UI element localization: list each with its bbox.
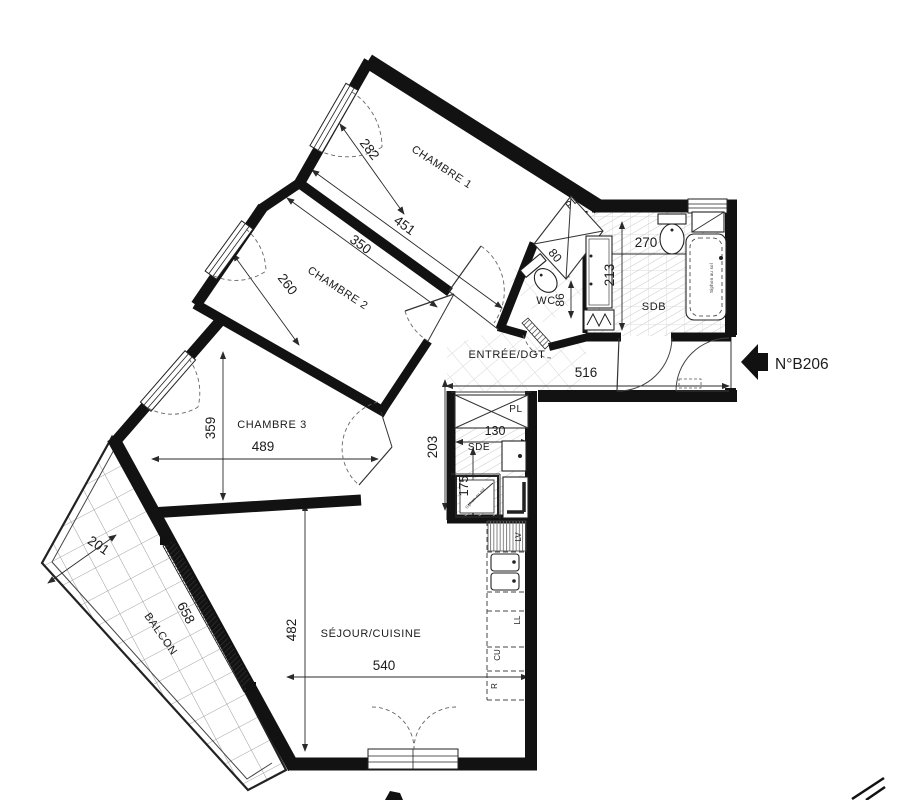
dim-chambre3-depth: 359 xyxy=(203,417,218,440)
dim-sde-width: 130 xyxy=(485,424,506,438)
room-label-entree: ENTRÉE/DGT xyxy=(469,348,546,361)
dim-sdb-depth: 213 xyxy=(602,264,617,287)
room-label-chambre2: CHAMBRE 2 xyxy=(305,265,370,313)
chambre2-window xyxy=(205,221,253,279)
sdb-door xyxy=(617,338,672,391)
unit-tag xyxy=(741,344,768,380)
note-floor-drain-bath: Siphon au sol xyxy=(709,263,714,293)
wall-ch2-ch3 xyxy=(195,304,386,413)
dim-wc-depth: 86 xyxy=(553,293,567,307)
balcony xyxy=(42,437,286,790)
closet-label-pl-hall: PL xyxy=(509,404,522,415)
chambre1-window xyxy=(310,83,358,152)
unit-label: N°B206 xyxy=(775,356,829,373)
dim-sejour-depth: 482 xyxy=(284,619,299,642)
bathtub xyxy=(686,234,726,320)
entrance-door xyxy=(676,338,729,391)
wall-jog-ch1-ch2 xyxy=(261,182,301,209)
ch3-door-jamb xyxy=(381,412,392,447)
dim-entree-depth: 203 xyxy=(425,436,440,459)
balcony-deck xyxy=(42,437,286,790)
wall-ch3-sejour xyxy=(150,500,361,513)
appliance-label-cooker: CU xyxy=(493,649,502,661)
ch3-window-swing2 xyxy=(148,407,198,414)
floor-plan-svg: CHAMBRE 1 CHAMBRE 2 CHAMBRE 3 ENTRÉE/DGT… xyxy=(0,0,899,800)
dim-sdb-width: 270 xyxy=(635,235,658,250)
wall-top-diagonal xyxy=(368,61,599,207)
unit-arrow-icon xyxy=(741,344,768,380)
appliance-label-dishwasher: LV xyxy=(514,532,523,542)
ch1-door-jamb xyxy=(450,292,499,330)
sdb-niche xyxy=(692,212,724,232)
chambre3-window xyxy=(140,351,195,412)
floor-plan-page: CHAMBRE 1 CHAMBRE 2 CHAMBRE 3 ENTRÉE/DGT… xyxy=(0,0,899,800)
washbasin-sde xyxy=(502,441,526,471)
appliance-label-washer: LL xyxy=(513,615,522,624)
room-label-sdb: SDB xyxy=(642,301,666,313)
dim-sejour-width: 540 xyxy=(373,658,396,673)
room-label-sde: SDE xyxy=(468,442,490,453)
dim-chambre3-width: 489 xyxy=(252,439,275,454)
chambre1-door xyxy=(449,246,504,323)
sejour-french-window xyxy=(368,707,458,769)
plan-edge-mark xyxy=(385,791,403,800)
entrance-doormat xyxy=(679,379,701,388)
kitchen-units xyxy=(487,521,527,700)
appliance-label-fridge: R xyxy=(490,683,499,689)
room-label-sejour: SÉJOUR/CUISINE xyxy=(321,627,422,640)
dim-entree-width: 516 xyxy=(575,365,598,380)
kitchen-sink xyxy=(491,554,519,590)
sdb-window xyxy=(688,199,727,213)
wall-hall-ch2 xyxy=(381,341,428,412)
north-indicator-icon xyxy=(852,778,885,800)
dim-chambre1-depth: 282 xyxy=(357,136,383,163)
dim-sde-depth: 175 xyxy=(457,476,471,497)
room-label-chambre3: CHAMBRE 3 xyxy=(237,419,307,431)
room-label-chambre1: CHAMBRE 1 xyxy=(409,144,474,192)
sdb-towel-radiator xyxy=(584,310,614,330)
sde-cabinet xyxy=(503,477,528,518)
dim-chambre2-depth: 260 xyxy=(275,271,301,298)
dim-chambre1-width: 451 xyxy=(391,213,418,238)
toilet-sdb xyxy=(658,214,686,254)
